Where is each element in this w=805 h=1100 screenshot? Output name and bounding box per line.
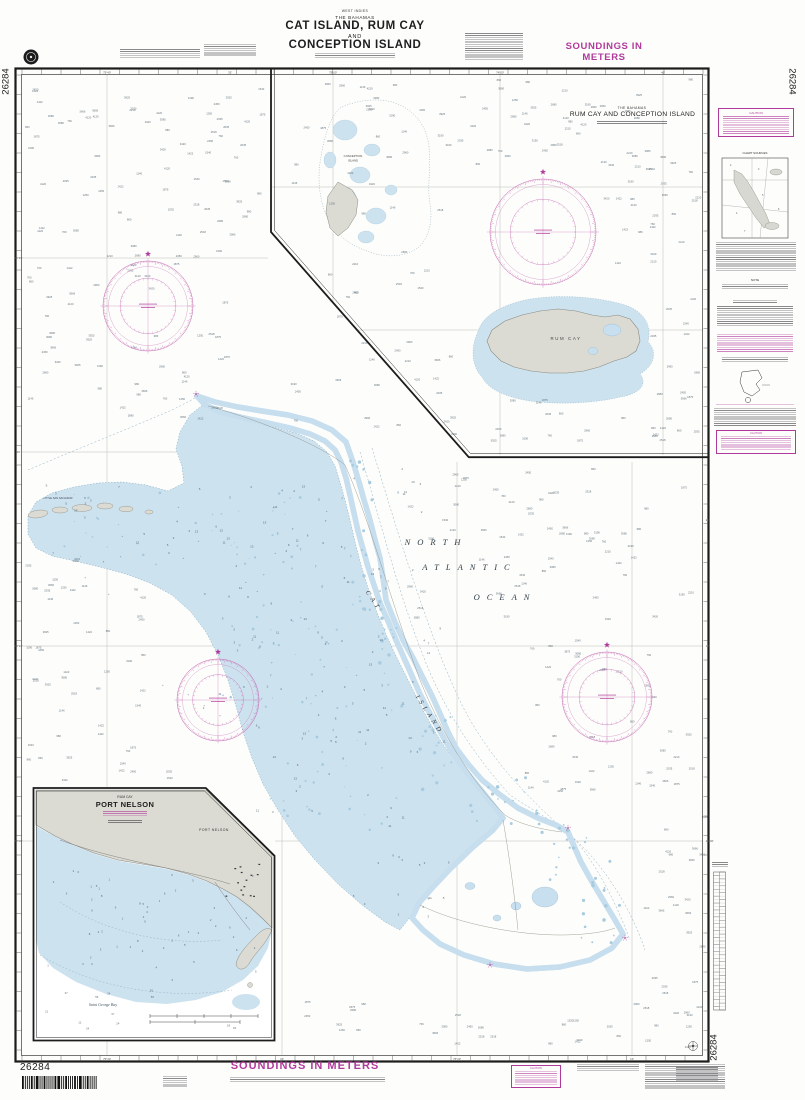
svg-text:13: 13 xyxy=(380,638,384,642)
svg-text:2680: 2680 xyxy=(559,532,565,536)
svg-text:2450: 2450 xyxy=(547,527,553,531)
chart-number-top-right: 26284 xyxy=(787,62,798,102)
svg-text:2518: 2518 xyxy=(417,606,423,610)
svg-text:2450: 2450 xyxy=(495,427,501,431)
svg-text:860: 860 xyxy=(182,370,187,374)
svg-text:2035: 2035 xyxy=(90,175,96,179)
port-nelson-inset xyxy=(33,788,275,1041)
svg-text:1875: 1875 xyxy=(692,980,698,984)
svg-text:1146: 1146 xyxy=(690,297,696,301)
svg-text:860: 860 xyxy=(106,629,111,633)
svg-text:3666: 3666 xyxy=(689,858,695,862)
svg-text:760: 760 xyxy=(498,149,503,153)
svg-text:860: 860 xyxy=(562,1022,567,1026)
svg-text:1875: 1875 xyxy=(222,300,228,304)
svg-text:1875: 1875 xyxy=(162,188,168,192)
port-nelson-title: PORT NELSON xyxy=(75,800,175,809)
margin-scale-ruler xyxy=(714,872,726,1010)
svg-text:2450: 2450 xyxy=(295,389,301,393)
svg-text:3420: 3420 xyxy=(55,360,61,364)
svg-text:9: 9 xyxy=(397,490,399,494)
svg-text:1146: 1146 xyxy=(390,205,396,209)
svg-text:1146: 1146 xyxy=(292,181,298,185)
svg-text:4120: 4120 xyxy=(450,528,456,532)
svg-text:3080: 3080 xyxy=(645,149,651,153)
svg-text:1422: 1422 xyxy=(589,769,595,773)
svg-text:3190: 3190 xyxy=(679,592,685,596)
svg-text:760: 760 xyxy=(668,729,673,733)
svg-text:2035: 2035 xyxy=(661,182,667,186)
heading-country: THE BAHAMAS xyxy=(255,15,455,20)
svg-text:10': 10' xyxy=(706,644,710,648)
chart-number-bottom-right: 26284 xyxy=(709,1028,720,1068)
svg-text:11: 11 xyxy=(383,706,386,710)
svg-text:1422: 1422 xyxy=(616,561,622,565)
svg-text:3666: 3666 xyxy=(481,528,487,532)
svg-text:1422: 1422 xyxy=(119,768,125,772)
svg-text:2680: 2680 xyxy=(646,771,652,775)
svg-text:2: 2 xyxy=(730,164,732,167)
rum-cay-label: RUM CAY xyxy=(550,336,581,341)
svg-text:760: 760 xyxy=(126,749,131,753)
svg-text:24°10': 24°10' xyxy=(15,644,23,648)
svg-text:3666: 3666 xyxy=(562,526,568,530)
svg-text:2035: 2035 xyxy=(211,406,217,410)
svg-text:11: 11 xyxy=(223,541,226,545)
svg-text:2680: 2680 xyxy=(487,148,493,152)
svg-text:2450: 2450 xyxy=(542,149,548,153)
svg-text:2518: 2518 xyxy=(209,332,215,336)
svg-text:2680: 2680 xyxy=(42,370,48,374)
svg-text:3666: 3666 xyxy=(109,124,115,128)
svg-text:3925: 3925 xyxy=(75,363,81,367)
compass-rose xyxy=(100,251,195,354)
svg-text:+: + xyxy=(198,539,200,543)
svg-text:+: + xyxy=(263,572,265,576)
svg-text:1422: 1422 xyxy=(70,588,76,592)
svg-text:40': 40' xyxy=(661,71,665,75)
svg-text:2960: 2960 xyxy=(364,416,370,420)
svg-text:+: + xyxy=(84,575,86,579)
svg-text:980: 980 xyxy=(689,78,694,82)
svg-text:9: 9 xyxy=(46,484,48,488)
svg-text:24: 24 xyxy=(107,991,111,995)
svg-text:4120: 4120 xyxy=(509,500,515,504)
svg-text:3925: 3925 xyxy=(124,95,130,99)
svg-text:13: 13 xyxy=(273,755,277,759)
svg-text:860: 860 xyxy=(449,354,454,358)
svg-text:860: 860 xyxy=(664,828,669,832)
svg-text:2518: 2518 xyxy=(455,1013,461,1017)
chart-canvas: 9809803080187515401422268041203080245025… xyxy=(0,0,805,1100)
svg-text:24°00': 24°00' xyxy=(15,839,23,843)
svg-text:13: 13 xyxy=(302,484,306,488)
svg-text:+: + xyxy=(256,589,258,593)
svg-text:1422: 1422 xyxy=(374,424,380,428)
svg-text:3080: 3080 xyxy=(48,114,54,118)
svg-text:980: 980 xyxy=(638,230,643,234)
svg-text:2035: 2035 xyxy=(240,143,246,147)
svg-text:3925: 3925 xyxy=(450,416,456,420)
svg-text:4120: 4120 xyxy=(660,426,666,430)
svg-text:2518: 2518 xyxy=(396,282,402,286)
svg-text:4120: 4120 xyxy=(696,1005,702,1009)
svg-text:2680: 2680 xyxy=(657,392,663,396)
chart-number-top-left: 26284 xyxy=(1,62,12,102)
svg-text:3190: 3190 xyxy=(566,532,572,536)
svg-text:1250: 1250 xyxy=(179,397,185,401)
illegible-text-block xyxy=(230,1077,385,1082)
svg-text:980: 980 xyxy=(257,191,262,195)
svg-text:1540: 1540 xyxy=(205,151,211,155)
svg-text:1875: 1875 xyxy=(687,395,693,399)
svg-text:4120: 4120 xyxy=(455,484,461,488)
svg-text:2035: 2035 xyxy=(553,491,559,495)
svg-text:3190: 3190 xyxy=(216,249,222,253)
svg-text:4120: 4120 xyxy=(601,160,607,164)
svg-text:3420: 3420 xyxy=(470,124,476,128)
svg-text:3925: 3925 xyxy=(491,439,497,443)
svg-text:4120: 4120 xyxy=(414,377,420,381)
svg-text:980: 980 xyxy=(118,211,123,215)
svg-text:980: 980 xyxy=(552,734,557,738)
svg-text:1422: 1422 xyxy=(622,228,628,232)
illegible-text-block xyxy=(716,242,796,272)
svg-text:2518: 2518 xyxy=(660,438,666,442)
svg-text:1250: 1250 xyxy=(419,108,425,112)
illegible-text-block xyxy=(722,357,788,363)
svg-text:13: 13 xyxy=(263,520,267,524)
svg-text:3190: 3190 xyxy=(28,146,34,150)
svg-text:980: 980 xyxy=(56,734,61,738)
svg-text:24°30': 24°30' xyxy=(15,256,23,260)
svg-text:980: 980 xyxy=(654,1024,659,1028)
svg-text:3080: 3080 xyxy=(49,331,55,335)
svg-text:3925: 3925 xyxy=(226,96,232,100)
svg-text:860: 860 xyxy=(677,428,682,432)
svg-text:1146: 1146 xyxy=(369,357,375,361)
svg-text:37: 37 xyxy=(111,1012,115,1016)
svg-text:3420: 3420 xyxy=(524,122,530,126)
svg-text:2960: 2960 xyxy=(452,473,458,477)
svg-text:3666: 3666 xyxy=(662,193,668,197)
svg-text:860: 860 xyxy=(356,1028,361,1032)
svg-text:2518: 2518 xyxy=(643,1006,649,1010)
svg-text:2035: 2035 xyxy=(63,179,69,183)
svg-text:6: 6 xyxy=(778,208,780,211)
svg-text:2450: 2450 xyxy=(38,648,44,652)
svg-text:3190: 3190 xyxy=(188,96,194,100)
svg-text:860: 860 xyxy=(328,273,333,277)
agency-seal xyxy=(24,50,39,65)
ocean-label-north: NORTH xyxy=(396,537,476,547)
svg-text:3925: 3925 xyxy=(66,755,72,759)
caution-box-margin: CAUTION xyxy=(718,108,794,137)
svg-text:3925: 3925 xyxy=(43,630,49,634)
svg-text:13: 13 xyxy=(195,530,199,534)
svg-text:980: 980 xyxy=(98,387,103,391)
svg-text:13: 13 xyxy=(136,541,140,545)
svg-text:3925: 3925 xyxy=(670,161,676,165)
svg-text:3666: 3666 xyxy=(79,110,85,114)
svg-text:2960: 2960 xyxy=(339,84,345,88)
svg-text:3925: 3925 xyxy=(86,337,92,341)
svg-text:3925: 3925 xyxy=(336,1023,342,1027)
svg-text:2210: 2210 xyxy=(650,259,656,263)
svg-text:1422: 1422 xyxy=(197,417,203,421)
magnetic-north-star xyxy=(604,642,610,648)
little-san-salvador-label: LITTLE SAN SALVADOR xyxy=(43,496,72,500)
coverage-outline-diagram xyxy=(740,370,770,403)
svg-text:860: 860 xyxy=(630,719,635,723)
svg-text:4120: 4120 xyxy=(631,203,637,207)
svg-text:1875: 1875 xyxy=(305,1000,311,1004)
svg-text:1875: 1875 xyxy=(564,650,570,654)
svg-text:3420: 3420 xyxy=(444,420,450,424)
svg-text:2035: 2035 xyxy=(666,307,672,311)
svg-text:+: + xyxy=(120,555,122,559)
svg-text:4: 4 xyxy=(736,212,738,215)
inset-title: RUM CAY AND CONCEPTION ISLAND xyxy=(545,111,720,118)
svg-text:860: 860 xyxy=(127,217,132,221)
svg-text:3666: 3666 xyxy=(141,389,147,393)
svg-text:2210: 2210 xyxy=(107,254,113,258)
svg-text:3190: 3190 xyxy=(628,180,634,184)
illegible-text-block xyxy=(204,44,256,57)
svg-text:1540: 1540 xyxy=(167,776,173,780)
svg-text:980: 980 xyxy=(247,209,252,213)
svg-text:2960: 2960 xyxy=(668,895,674,899)
illegible-text-block xyxy=(733,300,777,303)
svg-text:35': 35' xyxy=(228,71,232,75)
illegible-text-block xyxy=(120,49,200,58)
svg-text:980: 980 xyxy=(135,382,140,386)
svg-text:2518: 2518 xyxy=(662,991,668,995)
svg-text:4120: 4120 xyxy=(140,595,146,599)
svg-text:2680: 2680 xyxy=(128,414,134,418)
svg-text:13: 13 xyxy=(226,537,230,541)
svg-text:3190: 3190 xyxy=(522,437,528,441)
svg-text:2035: 2035 xyxy=(652,976,658,980)
svg-text:2680: 2680 xyxy=(500,433,506,437)
svg-text:4120: 4120 xyxy=(367,87,373,91)
svg-text:2960: 2960 xyxy=(406,340,412,344)
svg-text:4120: 4120 xyxy=(580,122,586,126)
svg-text:2960: 2960 xyxy=(325,82,331,86)
svg-text:3190: 3190 xyxy=(438,133,444,137)
svg-text:2960: 2960 xyxy=(505,154,511,158)
illegible-text-block xyxy=(597,121,667,125)
svg-text:2680: 2680 xyxy=(414,616,420,620)
svg-text:2680: 2680 xyxy=(549,745,555,749)
svg-text:1146: 1146 xyxy=(635,782,641,786)
note-heading: NOTE xyxy=(715,278,795,282)
svg-text:+: + xyxy=(178,505,180,509)
svg-text:74°50': 74°50' xyxy=(496,71,504,75)
svg-text:1540: 1540 xyxy=(548,556,554,560)
svg-text:2518: 2518 xyxy=(585,489,591,493)
svg-text:980: 980 xyxy=(637,527,642,531)
svg-text:1875: 1875 xyxy=(34,135,40,139)
soundings-note-top: SOUNDINGS IN METERS xyxy=(544,41,664,63)
svg-text:1250: 1250 xyxy=(52,578,58,582)
svg-text:1540: 1540 xyxy=(575,639,581,643)
illegible-text-block xyxy=(577,1064,639,1072)
svg-text:+: + xyxy=(183,556,185,560)
illegible-text-block xyxy=(315,53,395,58)
svg-text:+: + xyxy=(187,692,189,696)
svg-text:3666: 3666 xyxy=(685,911,691,915)
illegible-text-block xyxy=(676,1067,718,1082)
svg-text:2210: 2210 xyxy=(688,590,694,594)
svg-text:1540: 1540 xyxy=(258,87,264,91)
svg-text:860: 860 xyxy=(621,416,626,420)
svg-text:3925: 3925 xyxy=(236,200,242,204)
svg-text:3: 3 xyxy=(272,810,274,814)
svg-text:2960: 2960 xyxy=(402,150,408,154)
svg-text:1540: 1540 xyxy=(194,177,200,181)
conception-label-2: ISLAND xyxy=(348,159,358,163)
illegible-text-block xyxy=(717,306,793,326)
svg-text:1422: 1422 xyxy=(616,196,622,200)
svg-text:760: 760 xyxy=(163,397,168,401)
svg-text:1422: 1422 xyxy=(187,151,193,155)
magnetic-north-star xyxy=(145,251,151,257)
svg-text:2680: 2680 xyxy=(135,253,141,257)
svg-text:1250: 1250 xyxy=(98,189,104,193)
svg-text:860: 860 xyxy=(376,134,381,138)
svg-text:20': 20' xyxy=(17,450,21,454)
svg-text:3080: 3080 xyxy=(510,398,516,402)
svg-text:1875: 1875 xyxy=(560,787,566,791)
svg-text:4: 4 xyxy=(423,639,425,643)
svg-text:55: 55 xyxy=(95,995,99,999)
svg-text:980: 980 xyxy=(568,119,573,123)
svg-text:860: 860 xyxy=(542,569,547,573)
svg-text:+: + xyxy=(356,673,358,677)
svg-text:2960: 2960 xyxy=(193,255,199,259)
svg-text:11: 11 xyxy=(296,539,299,543)
svg-text:4120: 4120 xyxy=(85,116,91,120)
svg-text:3666: 3666 xyxy=(658,909,664,913)
svg-text:2035: 2035 xyxy=(607,1025,613,1029)
svg-text:3925: 3925 xyxy=(45,683,51,687)
svg-text:1422: 1422 xyxy=(643,906,649,910)
svg-text:3925: 3925 xyxy=(530,106,536,110)
svg-text:+: + xyxy=(273,640,275,644)
svg-text:760: 760 xyxy=(37,266,42,270)
svg-text:3: 3 xyxy=(427,915,429,919)
svg-text:1875: 1875 xyxy=(674,782,680,786)
svg-text:4120: 4120 xyxy=(135,274,141,278)
svg-text:4120: 4120 xyxy=(665,849,671,853)
svg-text:860: 860 xyxy=(29,280,34,284)
svg-text:760: 760 xyxy=(45,314,50,318)
svg-text:4120: 4120 xyxy=(93,115,99,119)
svg-text:3420: 3420 xyxy=(673,1011,679,1015)
svg-text:980: 980 xyxy=(165,128,170,132)
svg-text:3420: 3420 xyxy=(149,286,155,290)
svg-text:1422: 1422 xyxy=(545,665,551,669)
svg-text:11: 11 xyxy=(347,580,350,584)
svg-text:20': 20' xyxy=(706,518,710,522)
svg-text:3190: 3190 xyxy=(97,364,103,368)
illegible-text-block xyxy=(163,1076,187,1087)
svg-text:7: 7 xyxy=(428,641,430,645)
svg-text:3190: 3190 xyxy=(594,530,600,534)
svg-text:1422: 1422 xyxy=(615,261,621,265)
svg-text:1422: 1422 xyxy=(67,266,73,270)
svg-text:3420: 3420 xyxy=(180,142,186,146)
svg-text:1250: 1250 xyxy=(83,193,89,197)
nautical-chart-sheet: 9809803080187515401422268041203080245025… xyxy=(0,0,805,1100)
svg-text:2518: 2518 xyxy=(200,230,206,234)
svg-text:3080: 3080 xyxy=(498,86,504,90)
svg-text:1250: 1250 xyxy=(645,1038,651,1042)
svg-text:1875: 1875 xyxy=(173,262,179,266)
svg-text:1422: 1422 xyxy=(120,405,126,409)
svg-text:2450: 2450 xyxy=(304,125,310,129)
svg-text:1875: 1875 xyxy=(224,355,230,359)
svg-text:3190: 3190 xyxy=(446,143,452,147)
svg-text:3420: 3420 xyxy=(369,182,375,186)
ocean-label-atlantic: ATLANTIC xyxy=(417,562,522,572)
svg-text:2960: 2960 xyxy=(584,429,590,433)
svg-text:1422: 1422 xyxy=(118,184,124,188)
svg-text:2450: 2450 xyxy=(214,102,220,106)
svg-text:2035: 2035 xyxy=(545,412,551,416)
barcode xyxy=(22,1076,97,1089)
svg-text:2450: 2450 xyxy=(680,391,686,395)
svg-text:2035: 2035 xyxy=(666,767,672,771)
svg-text:+: + xyxy=(315,693,317,697)
svg-text:860: 860 xyxy=(548,644,553,648)
svg-text:3925: 3925 xyxy=(686,931,692,935)
svg-text:2035: 2035 xyxy=(166,770,172,774)
svg-text:3925: 3925 xyxy=(636,93,642,97)
svg-text:2518: 2518 xyxy=(217,406,223,410)
svg-text:75°40': 75°40' xyxy=(103,71,111,75)
svg-text:2450: 2450 xyxy=(504,555,510,559)
svg-text:2518: 2518 xyxy=(478,1034,484,1038)
svg-text:1422: 1422 xyxy=(650,225,656,229)
svg-text:2518: 2518 xyxy=(437,208,443,212)
svg-text:2518: 2518 xyxy=(557,143,563,147)
svg-text:3420: 3420 xyxy=(652,615,658,619)
svg-text:1540: 1540 xyxy=(442,518,448,522)
svg-text:13: 13 xyxy=(371,572,375,576)
svg-text:1540: 1540 xyxy=(499,535,505,539)
illegible-text-block xyxy=(712,862,728,867)
svg-text:860: 860 xyxy=(96,686,101,690)
svg-text:75°00': 75°00' xyxy=(329,71,337,75)
svg-text:760: 760 xyxy=(134,588,139,592)
saint-george-bay-label: Saint George Bay xyxy=(89,1002,118,1007)
svg-text:3080: 3080 xyxy=(374,383,380,387)
svg-text:3420: 3420 xyxy=(575,780,581,784)
svg-text:3666: 3666 xyxy=(225,180,231,184)
svg-text:5: 5 xyxy=(762,194,764,197)
svg-text:760: 760 xyxy=(62,230,67,234)
svg-text:3925: 3925 xyxy=(46,295,52,299)
svg-text:2960: 2960 xyxy=(159,364,165,368)
svg-text:1422: 1422 xyxy=(631,555,637,559)
svg-text:1422: 1422 xyxy=(86,630,92,634)
svg-text:860: 860 xyxy=(476,162,481,166)
svg-text:13: 13 xyxy=(74,509,78,513)
svg-text:3420: 3420 xyxy=(685,897,691,901)
svg-text:1146: 1146 xyxy=(522,112,528,116)
